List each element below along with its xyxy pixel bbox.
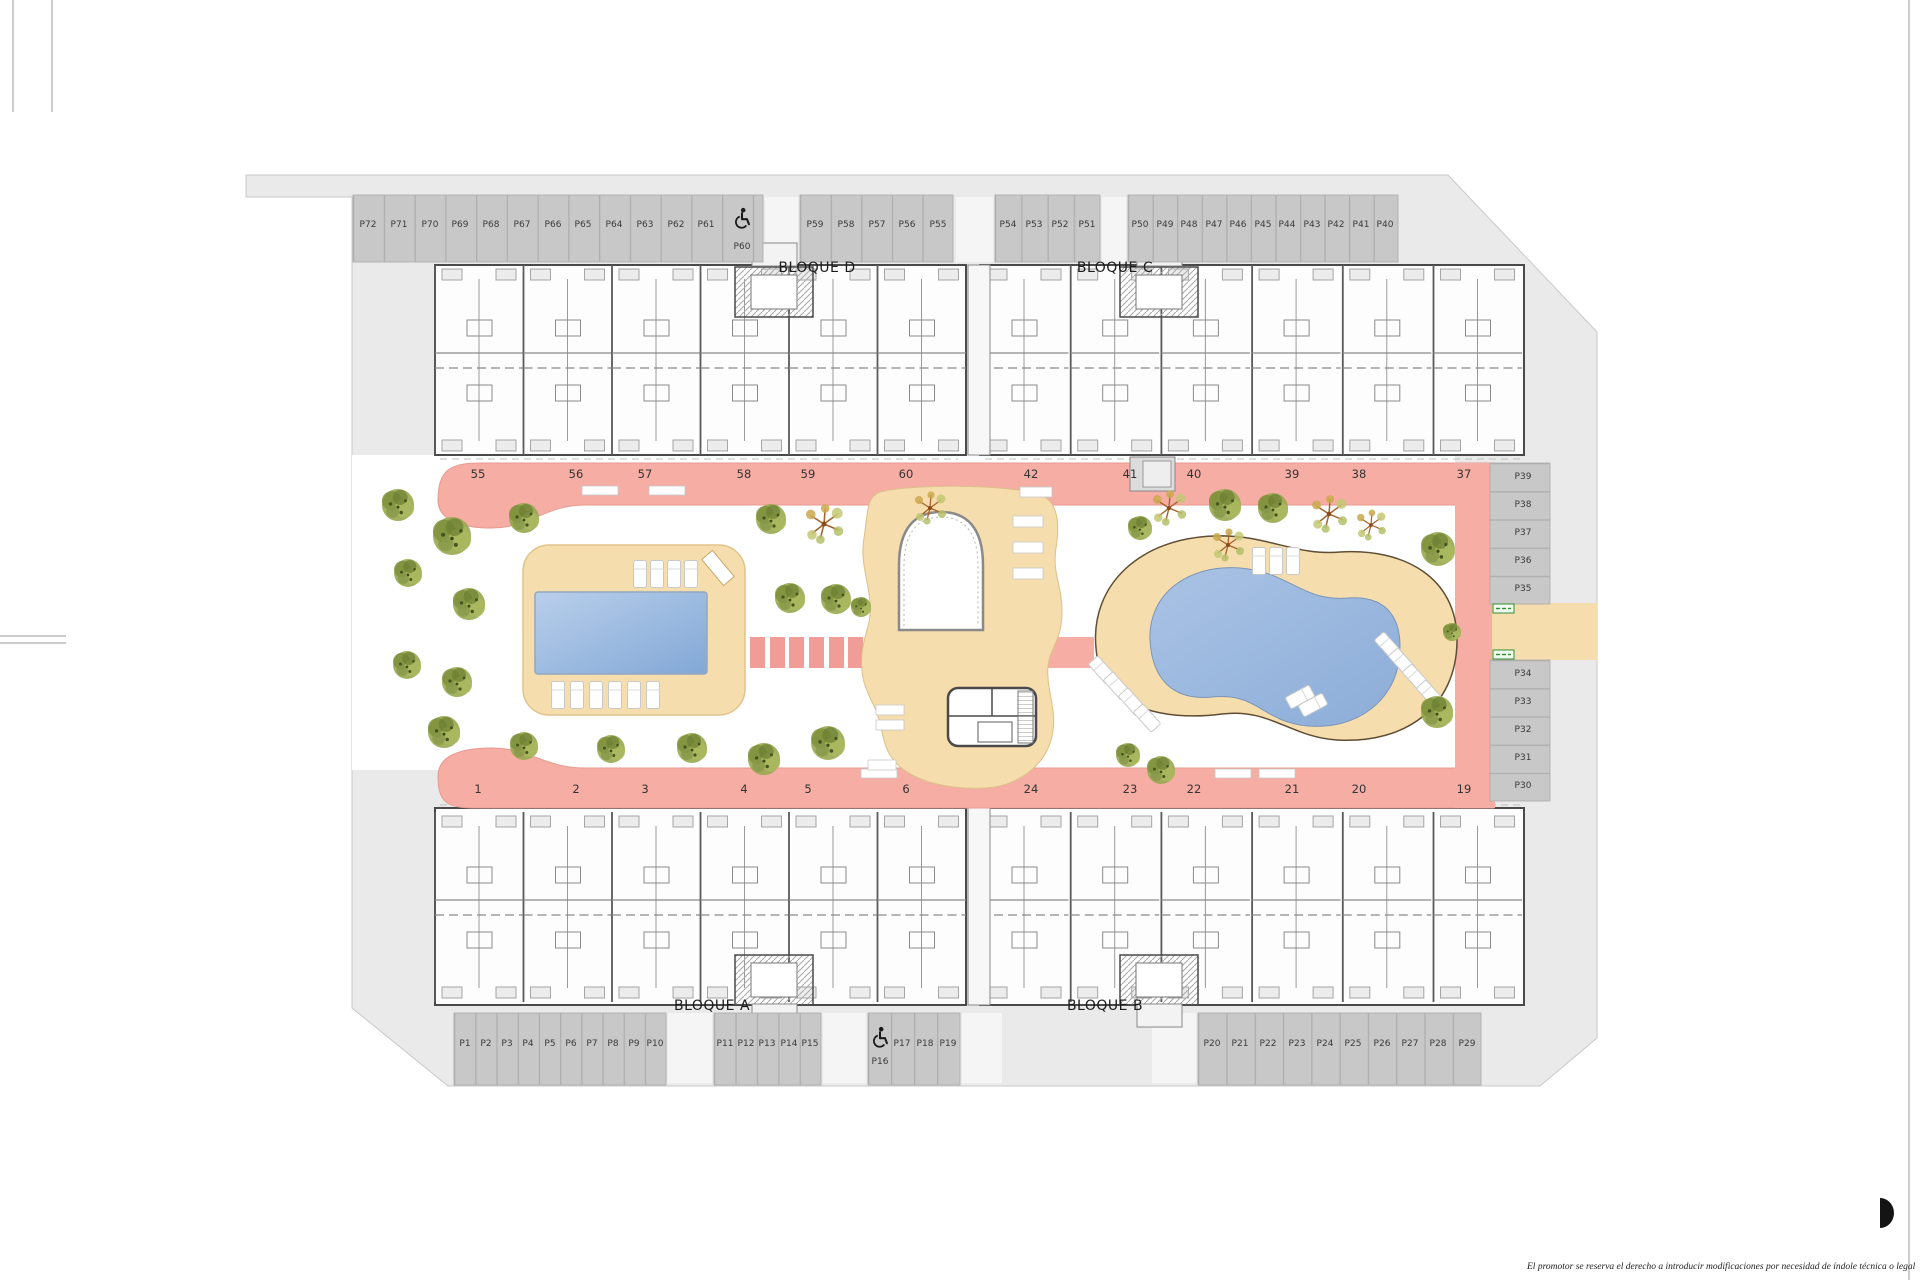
unit-number-label: 38	[1352, 467, 1367, 481]
block-label-d: BLOQUE D	[778, 260, 855, 276]
parking-space-label: P8	[607, 1039, 618, 1049]
parking-space-label: P20	[1204, 1039, 1221, 1049]
parking-space-label: P67	[514, 220, 531, 230]
unit-number-label: 24	[1024, 782, 1039, 796]
parking-space-label: P18	[917, 1039, 934, 1049]
unit-number-label: 55	[471, 467, 486, 481]
parking-space-label: P48	[1181, 220, 1198, 230]
parking-space-label: P26	[1374, 1039, 1391, 1049]
arched-court	[899, 512, 983, 630]
unit-number-label: 60	[899, 467, 914, 481]
parking-space-label: P59	[807, 220, 824, 230]
parking-space-label: P45	[1255, 220, 1272, 230]
unit-number-label: 57	[638, 467, 653, 481]
site-plan-page: BLOQUE D BLOQUE C BLOQUE A BLOQUE B P72 …	[0, 0, 1920, 1280]
parking-space-label: P13	[759, 1039, 776, 1049]
parking-space-label: P56	[899, 220, 916, 230]
parking-space-label: P43	[1304, 220, 1321, 230]
green-exit-sign	[1493, 650, 1514, 659]
unit-number-label: 2	[572, 782, 579, 796]
parking-space-label: P36	[1515, 556, 1532, 566]
parking-space-label: P29	[1459, 1039, 1476, 1049]
accessible-parking-label: P60	[734, 242, 751, 252]
unit-number-label: 37	[1457, 467, 1472, 481]
parking-space-label: P72	[360, 220, 377, 230]
parking-space-label: P44	[1279, 220, 1296, 230]
green-exit-sign	[1493, 604, 1514, 613]
unit-number-label: 19	[1457, 782, 1472, 796]
parking-space-label: P68	[483, 220, 500, 230]
block-a	[435, 808, 966, 1005]
unit-number-label: 39	[1285, 467, 1300, 481]
block-label-b: BLOQUE B	[1067, 998, 1143, 1014]
parking-space-label: P40	[1377, 220, 1394, 230]
parking-space-label: P22	[1260, 1039, 1277, 1049]
accessible-parking-label: P16	[872, 1057, 889, 1067]
pool-house	[948, 688, 1036, 746]
parking-space-label: P63	[637, 220, 654, 230]
parking-space-label: P2	[480, 1039, 491, 1049]
block-b	[980, 808, 1524, 1005]
parking-space-label: P9	[628, 1039, 639, 1049]
unit-number-label: 3	[641, 782, 648, 796]
parking-space-label: P25	[1345, 1039, 1362, 1049]
parking-space-label: P32	[1515, 725, 1532, 735]
parking-space-label: P24	[1317, 1039, 1334, 1049]
parking-space-label: P6	[565, 1039, 576, 1049]
parking-space-label: P35	[1515, 584, 1532, 594]
parking-space-label: P55	[930, 220, 947, 230]
unit-number-label: 1	[474, 782, 481, 796]
parking-space-label: P66	[545, 220, 562, 230]
block-c	[980, 265, 1524, 455]
block-label-c: BLOQUE C	[1077, 260, 1153, 276]
parking-space-label: P47	[1206, 220, 1223, 230]
parking-space-label: P19	[940, 1039, 957, 1049]
parking-space-label: P3	[501, 1039, 512, 1049]
parking-space-label: P23	[1289, 1039, 1306, 1049]
parking-space-label: P39	[1515, 472, 1532, 482]
parking-space-label: P30	[1515, 781, 1532, 791]
parking-space-label: P27	[1402, 1039, 1419, 1049]
parking-space-label: P69	[452, 220, 469, 230]
site-plan-drawing	[0, 0, 1920, 1280]
parking-space-label: P42	[1328, 220, 1345, 230]
parking-space-label: P41	[1353, 220, 1370, 230]
unit-number-label: 21	[1285, 782, 1300, 796]
unit-number-label: 40	[1187, 467, 1202, 481]
parking-space-label: P34	[1515, 669, 1532, 679]
parking-space-label: P28	[1430, 1039, 1447, 1049]
parking-space-label: P71	[391, 220, 408, 230]
parking-space-label: P33	[1515, 697, 1532, 707]
unit-number-label: 4	[740, 782, 747, 796]
logo-half-disc	[1880, 1198, 1894, 1228]
parking-space-label: P31	[1515, 753, 1532, 763]
block-label-a: BLOQUE A	[674, 998, 750, 1014]
parking-space-label: P1	[459, 1039, 470, 1049]
unit-number-label: 22	[1187, 782, 1202, 796]
unit-number-label: 56	[569, 467, 584, 481]
parking-space-label: P57	[869, 220, 886, 230]
parking-space-label: P12	[738, 1039, 755, 1049]
parking-space-label: P53	[1026, 220, 1043, 230]
parking-space-label: P5	[544, 1039, 555, 1049]
parking-space-label: P17	[894, 1039, 911, 1049]
unit-number-label: 58	[737, 467, 752, 481]
parking-space-label: P37	[1515, 528, 1532, 538]
parking-space-label: P21	[1232, 1039, 1249, 1049]
parking-space-label: P61	[698, 220, 715, 230]
left-pool	[535, 592, 707, 674]
parking-space-label: P11	[717, 1039, 734, 1049]
parking-space-label: P52	[1052, 220, 1069, 230]
unit-number-label: 41	[1123, 467, 1138, 481]
parking-space-label: P15	[802, 1039, 819, 1049]
parking-space-label: P70	[422, 220, 439, 230]
block-d	[435, 265, 966, 455]
parking-space-label: P54	[1000, 220, 1017, 230]
parking-space-label: P50	[1132, 220, 1149, 230]
parking-space-label: P62	[668, 220, 685, 230]
unit-number-label: 59	[801, 467, 816, 481]
parking-space-label: P14	[781, 1039, 798, 1049]
unit-number-label: 5	[804, 782, 811, 796]
parking-space-label: P4	[522, 1039, 533, 1049]
parking-space-label: P46	[1230, 220, 1247, 230]
unit-number-label: 6	[902, 782, 909, 796]
unit-number-label: 23	[1123, 782, 1138, 796]
unit-number-label: 42	[1024, 467, 1039, 481]
parking-space-label: P7	[586, 1039, 597, 1049]
parking-space-label: P58	[838, 220, 855, 230]
parking-space-label: P51	[1079, 220, 1096, 230]
parking-space-label: P65	[575, 220, 592, 230]
disclaimer-text: El promotor se reserva el derecho a intr…	[1527, 1262, 1915, 1272]
unit-number-label: 20	[1352, 782, 1367, 796]
parking-space-label: P38	[1515, 500, 1532, 510]
parking-space-label: P49	[1157, 220, 1174, 230]
parking-space-label: P64	[606, 220, 623, 230]
parking-space-label: P10	[647, 1039, 664, 1049]
